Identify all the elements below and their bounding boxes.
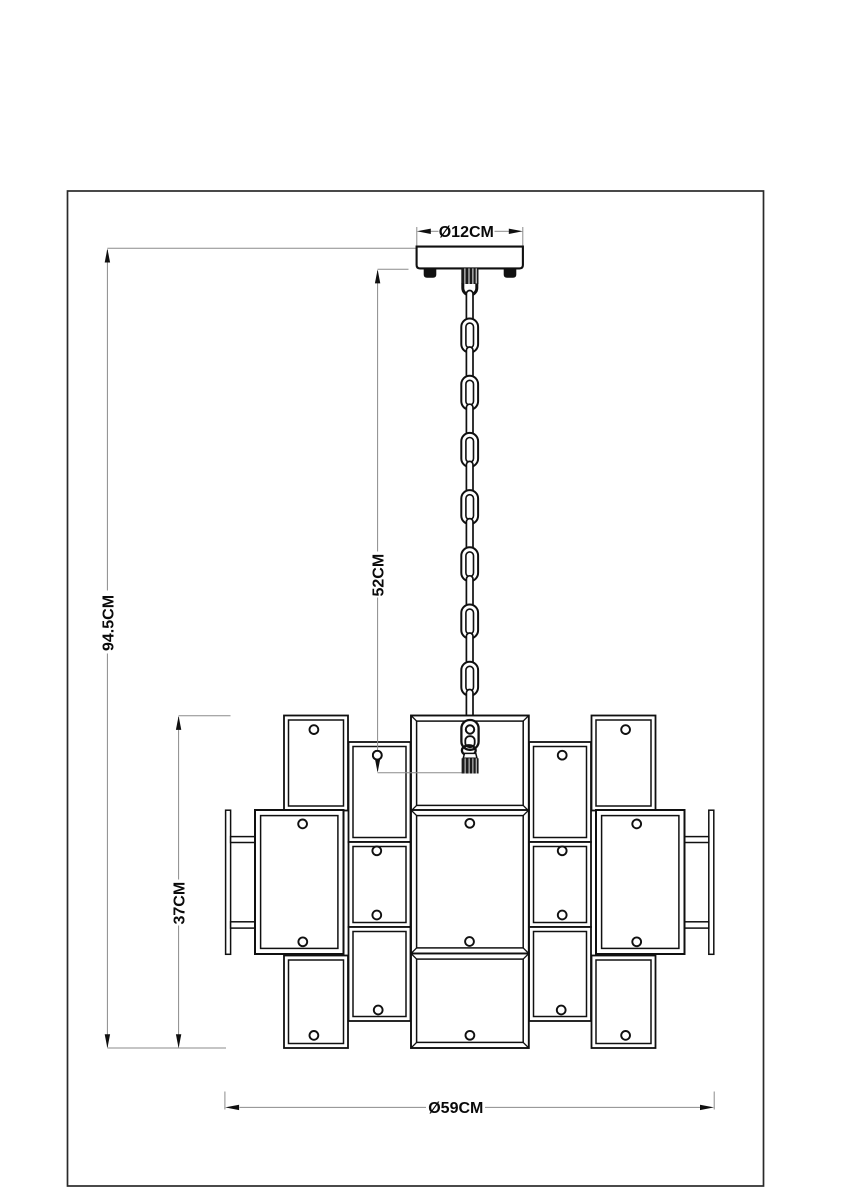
svg-text:52CM: 52CM [371, 554, 388, 597]
svg-text:37CM: 37CM [172, 882, 189, 925]
svg-text:Ø59CM: Ø59CM [428, 1100, 483, 1117]
svg-text:94.5CM: 94.5CM [100, 595, 117, 651]
svg-text:Ø12CM: Ø12CM [439, 224, 494, 241]
